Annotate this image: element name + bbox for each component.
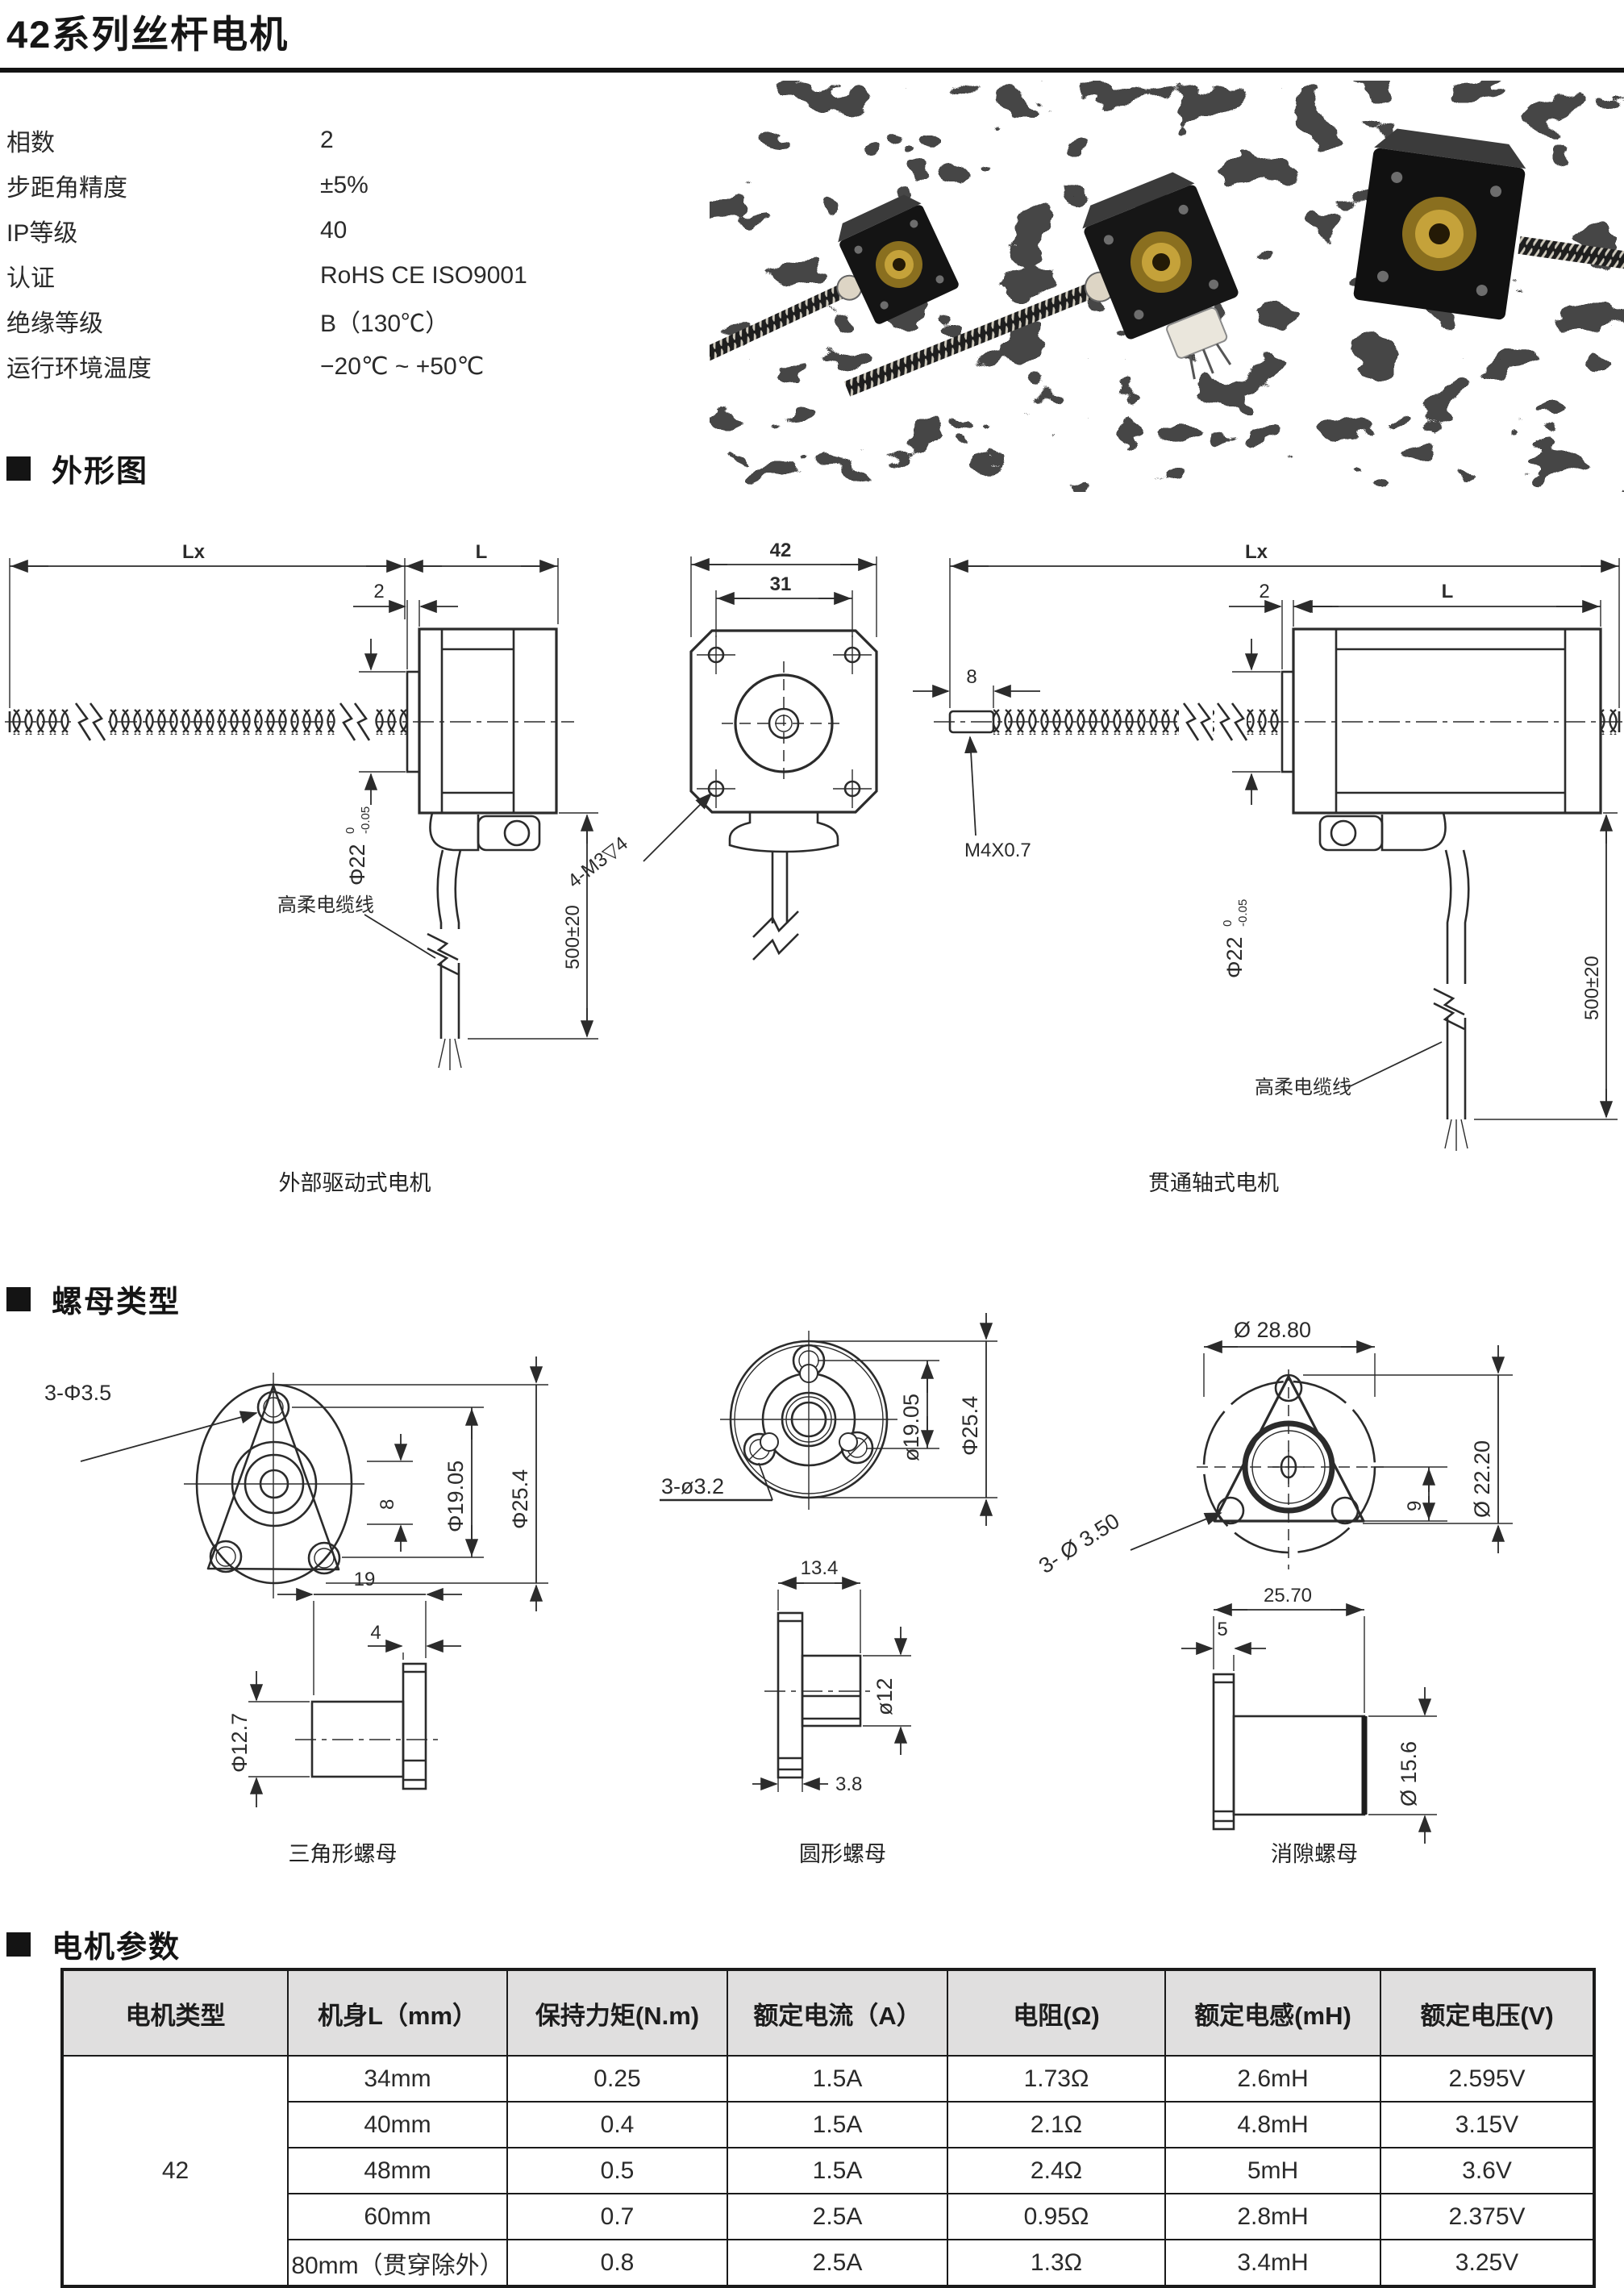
dim-flange-round: 3.8 [835, 1773, 862, 1795]
dim-cable-length-right: 500±20 [1581, 956, 1603, 1020]
cell: 4.8mH [1165, 2102, 1380, 2148]
spec-label: 步距角精度 [6, 168, 320, 203]
spec-label: 绝缘等级 [6, 303, 320, 339]
dim-length-antibacklash: 25.70 [1264, 1585, 1312, 1607]
product-photo [710, 81, 1624, 492]
motor-type-cell: 42 [62, 2056, 288, 2286]
caption-right-motor: 贯通轴式电机 [1148, 1171, 1279, 1195]
cable-break-left [426, 929, 474, 974]
dim-tap-front: 4-M3▽4 [564, 832, 632, 893]
spec-value: RoHS CE ISO9001 [320, 262, 700, 290]
spec-label: 认证 [6, 258, 320, 294]
cell: 2.5A [727, 2240, 947, 2286]
cable-label-left: 高柔电缆线 [277, 894, 374, 916]
outline-drawing-front: 42 31 4-M [564, 540, 877, 960]
caption-triangle-nut: 三角形螺母 [289, 1842, 398, 1866]
col-header: 额定电流（A） [727, 1969, 947, 2056]
col-header: 额定电感(mH) [1165, 1969, 1380, 2056]
dim-shaft-dia-left: Φ22 [345, 844, 369, 886]
cell: 2.1Ω [947, 2102, 1165, 2148]
product-photo-svg [710, 81, 1624, 492]
dim-body-dia-round: ø12 [872, 1677, 897, 1715]
table-row: 80mm（贯穿除外） 0.8 2.5A 1.3Ω 3.4mH 3.25V [62, 2240, 1594, 2286]
section-marker-icon [6, 456, 31, 481]
page-title: 42系列丝杆电机 [6, 3, 289, 59]
outline-drawing-left: Lx L 2 [5, 541, 598, 1195]
dim-outer-antibacklash: Ø 28.80 [1234, 1318, 1311, 1342]
cell: 1.5A [727, 2148, 947, 2194]
spec-row: 认证RoHS CE ISO9001 [6, 253, 700, 298]
cell: 1.73Ω [947, 2056, 1165, 2102]
cell: 34mm [288, 2056, 507, 2102]
dim-bolt-circle-antibacklash: Ø 22.20 [1470, 1440, 1494, 1518]
dim-bolt-circle-round: ø19.05 [899, 1394, 923, 1461]
dim-length-triangle: 19 [354, 1569, 376, 1590]
cable-label-right: 高柔电缆线 [1255, 1077, 1351, 1098]
cell: 2.375V [1380, 2194, 1594, 2240]
col-header: 电阻(Ω) [947, 1969, 1165, 2056]
cell: 3.4mH [1165, 2240, 1380, 2286]
spec-value: 40 [320, 217, 700, 244]
screw-break-left-2 [335, 702, 373, 742]
spec-label: IP等级 [6, 213, 320, 248]
cell: 0.95Ω [947, 2194, 1165, 2240]
spec-row: 步距角精度±5% [6, 163, 700, 208]
col-header: 保持力矩(N.m) [507, 1969, 727, 2056]
spec-row: 运行环境温度−20℃ ~ +50℃ [6, 344, 700, 389]
dim-l-right: L [1442, 581, 1454, 602]
dim-body-dia-triangle: Φ12.7 [227, 1713, 252, 1773]
cell: 0.8 [507, 2240, 727, 2286]
spec-value: −20℃ ~ +50℃ [320, 352, 700, 381]
dim-thread-right: M4X0.7 [964, 840, 1031, 861]
section-title-params: 电机参数 [52, 1922, 181, 1966]
cell: 5mH [1165, 2148, 1380, 2194]
table-row: 40mm 0.4 1.5A 2.1Ω 4.8mH 3.15V [62, 2102, 1594, 2148]
col-header: 额定电压(V) [1380, 1969, 1594, 2056]
cell: 1.5A [727, 2056, 947, 2102]
dim-flange-triangle: 4 [370, 1622, 381, 1644]
dim-tol-upper-left: 0 [344, 827, 357, 834]
screw-break-left-1 [71, 702, 108, 742]
title-divider [0, 68, 1624, 73]
col-header: 机身L（mm） [288, 1969, 507, 2056]
dim-offset-antibacklash: 9 [1404, 1501, 1426, 1511]
spec-value: B（130℃） [320, 303, 700, 339]
dim-lx-right: Lx [1245, 541, 1268, 563]
dim-outer-triangle: Φ25.4 [508, 1469, 532, 1529]
cell: 0.4 [507, 2102, 727, 2148]
dim-holes-round: 3-ø3.2 [661, 1474, 724, 1498]
dim-holes-front: 31 [770, 573, 792, 595]
motor-params-table: 电机类型 机身L（mm） 保持力矩(N.m) 额定电流（A） 电阻(Ω) 额定电… [60, 1968, 1596, 2288]
cell: 80mm（贯穿除外） [288, 2240, 507, 2286]
cell: 3.15V [1380, 2102, 1594, 2148]
cell: 2.4Ω [947, 2148, 1165, 2194]
screw-break-right-2 [1214, 702, 1247, 742]
datasheet-page: { "page": { "title": "42系列丝杆电机" }, "colo… [0, 0, 1624, 2278]
caption-antibacklash-nut: 消隙螺母 [1271, 1842, 1358, 1866]
spec-row: IP等级40 [6, 208, 700, 253]
dim-length-round: 13.4 [801, 1557, 839, 1579]
spec-row: 绝缘等级B（130℃） [6, 298, 700, 344]
cell: 2.5A [727, 2194, 947, 2240]
table-header-row: 电机类型 机身L（mm） 保持力矩(N.m) 额定电流（A） 电阻(Ω) 额定电… [62, 1969, 1594, 2056]
dim-shaft-dia-right: Φ22 [1222, 936, 1247, 978]
col-header: 电机类型 [62, 1969, 288, 2056]
nut-antibacklash-drawing: Ø 28.80 9 Ø 22.20 3- Ø 3.50 25.70 5 [1035, 1318, 1513, 1866]
section-title-outline: 外形图 [52, 446, 148, 490]
section-header-params: 电机参数 [6, 1922, 181, 1966]
nut-round-drawing: 3-ø3.2 ø19.05 Φ25.4 13.4 [660, 1313, 997, 1866]
spec-label: 运行环境温度 [6, 348, 320, 384]
outline-drawings-svg: Lx L 2 [0, 516, 1624, 1210]
section-header-outline: 外形图 [6, 446, 148, 490]
cell: 60mm [288, 2194, 507, 2240]
dim-holes-triangle: 3-Φ3.5 [44, 1381, 111, 1405]
cell: 40mm [288, 2102, 507, 2148]
dim-tol-lower-left: -0.05 [359, 806, 373, 834]
dim-flange-antibacklash: 5 [1217, 1619, 1227, 1640]
dim-lx-left: Lx [182, 541, 206, 563]
cell: 0.5 [507, 2148, 727, 2194]
table-row: 60mm 0.7 2.5A 0.95Ω 2.8mH 2.375V [62, 2194, 1594, 2240]
dim-flange-right: 2 [1259, 581, 1269, 602]
table-row: 48mm 0.5 1.5A 2.4Ω 5mH 3.6V [62, 2148, 1594, 2194]
nut-drawings-svg: 3-Φ3.5 8 Φ19.05 Φ25.4 19 4 [0, 1290, 1624, 1879]
cell: 0.25 [507, 2056, 727, 2102]
dim-outer-round: Φ25.4 [958, 1396, 982, 1456]
spec-list: 相数2 步距角精度±5% IP等级40 认证RoHS CE ISO9001 绝缘… [6, 118, 700, 389]
cable-break-right [1432, 984, 1480, 1029]
caption-round-nut: 圆形螺母 [799, 1842, 886, 1866]
spec-row: 相数2 [6, 118, 700, 163]
dim-cable-length-left: 500±20 [562, 905, 584, 969]
dim-height-triangle: 8 [377, 1499, 398, 1510]
dim-bolt-circle-triangle: Φ19.05 [443, 1461, 468, 1532]
section-marker-icon [6, 1932, 31, 1957]
dim-tol-lower-right: -0.05 [1236, 899, 1250, 927]
dim-l-left: L [476, 541, 488, 563]
table-row: 42 34mm 0.25 1.5A 1.73Ω 2.6mH 2.595V [62, 2056, 1594, 2102]
screw-break-right-1 [1179, 702, 1213, 742]
cell: 2.6mH [1165, 2056, 1380, 2102]
dim-width-front: 42 [770, 540, 792, 561]
cell: 3.25V [1380, 2240, 1594, 2286]
cell: 1.5A [727, 2102, 947, 2148]
cable-break-front [753, 911, 798, 960]
cell: 3.6V [1380, 2148, 1594, 2194]
cell: 2.8mH [1165, 2194, 1380, 2240]
spec-label: 相数 [6, 123, 320, 158]
spec-value: ±5% [320, 172, 700, 199]
dim-body-dia-antibacklash: Ø 15.6 [1397, 1741, 1421, 1807]
dim-tip-right: 8 [966, 666, 976, 688]
cell: 48mm [288, 2148, 507, 2194]
outline-drawing-right: Lx 2 L 8 M4X [913, 541, 1624, 1195]
cell: 1.3Ω [947, 2240, 1165, 2286]
spec-value: 2 [320, 127, 700, 154]
caption-left-motor: 外部驱动式电机 [279, 1171, 431, 1195]
dim-tol-upper-right: 0 [1221, 920, 1235, 927]
dim-holes-antibacklash: 3- Ø 3.50 [1035, 1509, 1124, 1578]
cell: 2.595V [1380, 2056, 1594, 2102]
dim-flange-left: 2 [373, 581, 384, 602]
nut-triangle-drawing: 3-Φ3.5 8 Φ19.05 Φ25.4 19 4 [44, 1357, 548, 1866]
cell: 0.7 [507, 2194, 727, 2240]
